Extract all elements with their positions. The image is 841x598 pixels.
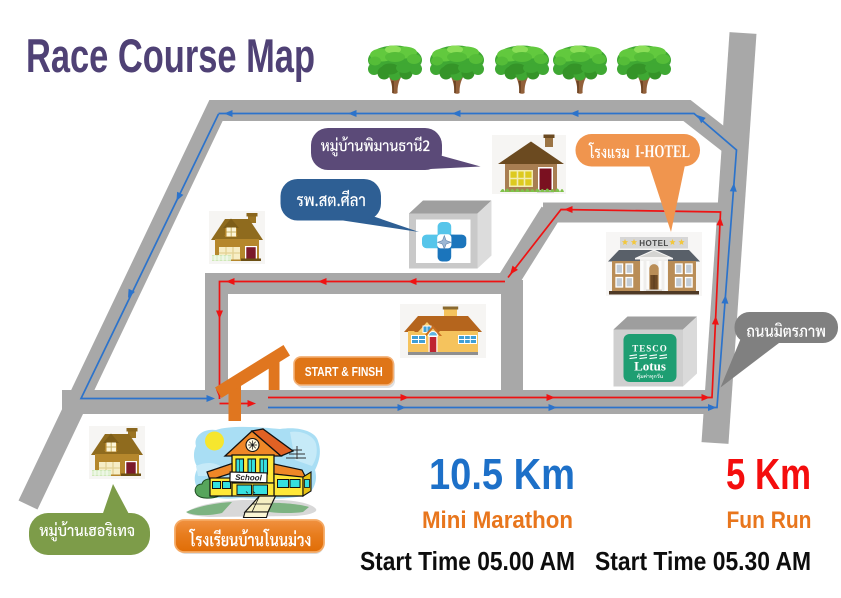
svg-text:10.5 Km: 10.5 Km	[429, 450, 575, 499]
svg-text:5 Km: 5 Km	[726, 450, 811, 499]
svg-text:Mini Marathon: Mini Marathon	[422, 507, 573, 534]
svg-text:Fun Run: Fun Run	[727, 507, 812, 534]
svg-text:Lotus: Lotus	[634, 359, 666, 374]
svg-text:Start Time 05.30 AM: Start Time 05.30 AM	[595, 546, 811, 576]
svg-text:Start Time 05.00 AM: Start Time 05.00 AM	[360, 546, 575, 576]
svg-text:Race Course Map: Race Course Map	[26, 29, 315, 82]
svg-text:TESCO: TESCO	[632, 344, 668, 354]
svg-text:School: School	[235, 473, 263, 483]
svg-text:START & FINSH: START & FINSH	[305, 365, 383, 379]
svg-text:HOTEL: HOTEL	[639, 239, 669, 248]
